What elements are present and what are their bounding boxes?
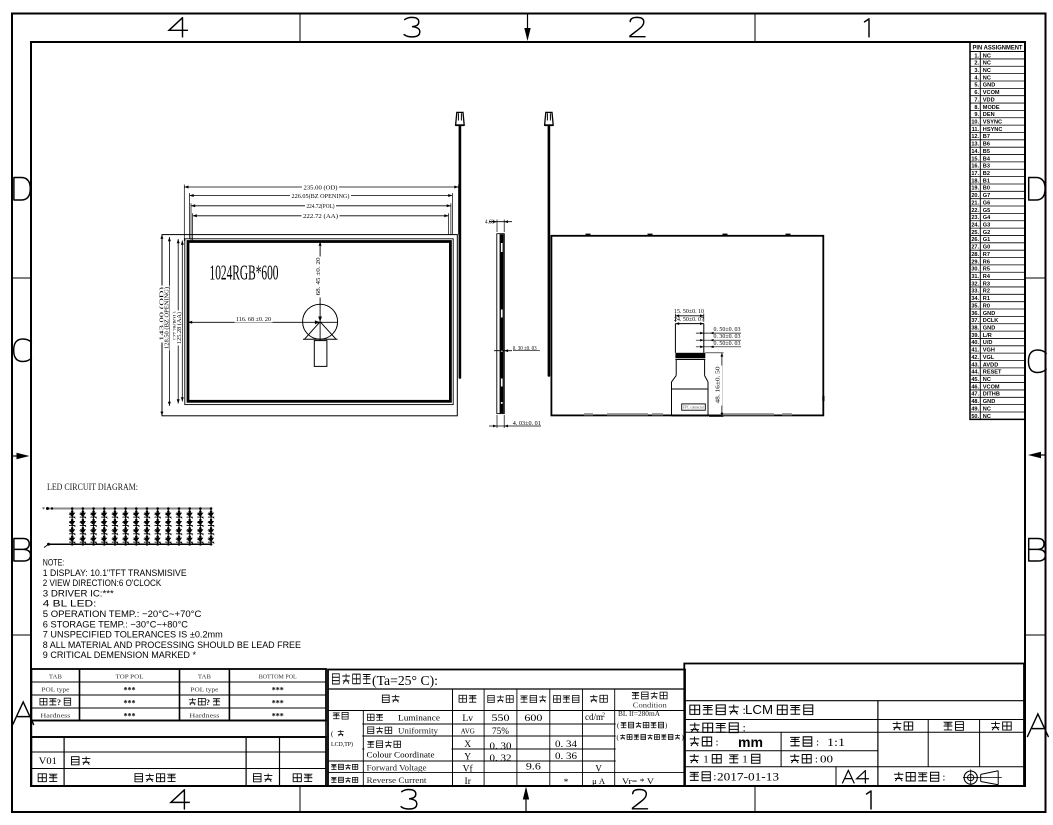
svg-text:MODE: MODE [983,105,1000,111]
svg-text:0. 32: 0. 32 [490,754,512,764]
svg-text:4.: 4. [974,75,979,81]
svg-text:NC: NC [983,406,991,412]
svg-text:G6: G6 [983,200,990,206]
svg-text:(Ta=25° C):: (Ta=25° C): [372,673,438,688]
svg-text:26.: 26. [971,237,979,243]
svg-text:48.: 48. [971,399,979,405]
svg-text:U/D: U/D [983,340,993,346]
svg-text:550: 550 [492,714,510,724]
svg-text:48. 16±0. 50: 48. 16±0. 50 [715,367,721,404]
svg-text:4. 03±0. 01: 4. 03±0. 01 [513,420,541,427]
svg-text:222.72 (AA): 222.72 (AA) [303,213,338,220]
svg-text:G5: G5 [983,208,990,214]
svg-text:32.: 32. [971,281,979,287]
svg-text:GND: GND [983,325,995,331]
svg-text:NC: NC [983,68,991,74]
svg-text:POL type: POL type [41,687,69,694]
svg-text:R4: R4 [983,274,991,280]
svg-text:B4: B4 [983,156,991,162]
svg-text:1:1: 1:1 [827,735,845,749]
svg-text:NC: NC [983,414,991,420]
svg-text:μ A: μ A [592,776,606,786]
svg-text:21.: 21. [971,200,979,206]
svg-text:VGL: VGL [983,355,995,361]
svg-text:B3: B3 [983,164,990,170]
svg-text:Vr= * V: Vr= * V [622,776,655,786]
svg-text:***: *** [124,686,136,695]
svg-text:LED CIRCUIT DIAGRAM:: LED CIRCUIT DIAGRAM: [47,482,138,492]
svg-text:GND: GND [983,83,995,89]
svg-text:41.: 41. [971,348,979,354]
svg-text:42.: 42. [971,355,979,361]
svg-text:4.68: 4.68 [485,219,494,226]
svg-text:1: 1 [742,754,748,766]
svg-text:PIN ASSIGNMENT: PIN ASSIGNMENT [973,44,1023,51]
svg-text:128.50 (BZ OPENING): 128.50 (BZ OPENING) [164,287,171,349]
svg-text:B1: B1 [983,178,990,184]
svg-text:***: *** [272,686,284,695]
svg-text:VGH: VGH [983,348,995,354]
svg-text:V01: V01 [39,756,57,766]
svg-text:Lv: Lv [462,714,473,724]
svg-text:***: *** [272,699,284,708]
svg-text:AVDD: AVDD [983,362,998,368]
svg-text:39.: 39. [971,333,979,339]
svg-text:cd/m: cd/m [585,712,603,722]
svg-text:GND: GND [983,311,995,317]
svg-text:?: ? [206,698,210,707]
svg-text:AVG: AVG [461,728,475,736]
svg-text:DITHB: DITHB [983,392,1000,398]
svg-text:Ir: Ir [465,777,472,787]
svg-text:TAB: TAB [198,674,211,681]
svg-text:V: V [595,764,602,774]
svg-text:13.: 13. [971,142,979,148]
svg-text:20.: 20. [971,193,979,199]
svg-text:33.: 33. [971,289,979,295]
svg-text:38.: 38. [971,325,979,331]
svg-text:L/R: L/R [983,333,992,339]
svg-text:2.: 2. [974,61,979,67]
svg-text:B7: B7 [983,134,990,140]
svg-text:19.: 19. [971,186,979,192]
svg-text:47.: 47. [971,392,979,398]
svg-text:R7: R7 [983,252,990,258]
svg-text:R6: R6 [983,259,990,265]
svg-text:LCD,TP): LCD,TP) [331,741,353,748]
svg-text:VCOM: VCOM [983,384,1000,390]
svg-text:Y: Y [464,753,471,763]
svg-text:G3: G3 [983,223,990,229]
svg-text:45.: 45. [971,377,979,383]
svg-text:?: ? [57,698,61,707]
svg-text:15.: 15. [971,156,979,162]
svg-text:RESET: RESET [983,370,1002,376]
svg-text:00: 00 [820,754,834,766]
svg-text:Forward Voltage: Forward Voltage [367,764,427,773]
svg-text:NC: NC [983,53,991,59]
svg-text:NC: NC [983,75,991,81]
svg-text:): ) [665,723,667,730]
svg-text:25.: 25. [971,230,979,236]
svg-text:36.: 36. [971,311,979,317]
svg-text:TAB: TAB [49,674,62,681]
svg-text:30.: 30. [971,267,979,273]
svg-text:B6: B6 [983,142,990,148]
svg-text:B2: B2 [983,171,990,177]
svg-text:0. 50±0. 03: 0. 50±0. 03 [714,341,741,347]
svg-text:5.: 5. [974,83,979,89]
svg-text:10.: 10. [971,120,979,126]
svg-text:43.: 43. [971,362,979,368]
svg-text:Uniformity: Uniformity [398,727,439,736]
svg-text:17.: 17. [971,171,979,177]
svg-text:HSYNC: HSYNC [983,127,1003,133]
svg-text:***: *** [124,712,136,721]
svg-text::: : [743,721,746,735]
svg-text:R5: R5 [983,267,990,273]
svg-text:VSYNC: VSYNC [983,120,1002,126]
svg-text:35.: 35. [971,303,979,309]
svg-text:G2: G2 [983,230,990,236]
svg-text:50.: 50. [971,414,979,420]
svg-text:BL If=280mA: BL If=280mA [618,710,661,718]
svg-text:mm: mm [738,734,763,750]
svg-text:46.: 46. [971,384,979,390]
svg-text:R1: R1 [983,296,990,302]
svg-text:27.: 27. [971,245,979,251]
svg-text:VCOM: VCOM [983,90,1000,96]
svg-text:*: * [564,778,569,788]
svg-text:FPC connector: FPC connector [683,405,705,410]
svg-text:37.: 37. [971,318,979,324]
svg-text:0. 30±0. 03: 0. 30±0. 03 [714,334,741,340]
svg-text:28.: 28. [971,252,979,258]
svg-text:DCLK: DCLK [983,318,999,324]
svg-text:2: 2 [602,713,605,719]
svg-text:31.: 31. [971,274,979,280]
svg-text:X: X [464,740,471,750]
svg-text:G1: G1 [983,237,990,243]
svg-text:Hardness: Hardness [40,713,71,720]
svg-text:1.: 1. [974,53,979,59]
svg-text:Hardness: Hardness [189,713,220,720]
svg-text:49.: 49. [971,406,979,412]
svg-text:23.: 23. [971,215,979,221]
svg-text:235.00 (OD): 235.00 (OD) [304,184,338,191]
svg-text:***: *** [272,712,284,721]
svg-text:0. 36: 0. 36 [555,752,577,762]
svg-text:Condition: Condition [633,702,668,710]
svg-text:12.: 12. [971,134,979,140]
svg-text:***: *** [124,699,136,708]
svg-text:0. 50±0. 03: 0. 50±0. 03 [714,327,741,333]
svg-text:15. 50±0. 10: 15. 50±0. 10 [674,309,704,315]
svg-text:224.72(POL): 224.72(POL) [307,203,335,210]
svg-text:G7: G7 [983,193,990,199]
svg-text::: : [942,772,945,784]
svg-text:*: * [42,507,45,513]
svg-text:NC: NC [983,377,991,383]
svg-text:B0: B0 [983,186,990,192]
svg-text:14.: 14. [971,149,979,155]
svg-text:8.: 8. [974,105,979,111]
svg-text:0. 34: 0. 34 [555,740,577,750]
svg-text:1024RGB*600: 1024RGB*600 [210,260,279,284]
svg-text:125.28 (AA): 125.28 (AA) [176,312,183,344]
svg-text:9.6: 9.6 [526,763,541,773]
svg-text::: : [816,737,819,749]
svg-text:BOTTOM POL: BOTTOM POL [259,674,297,681]
svg-text:116. 68 ±0. 20: 116. 68 ±0. 20 [236,316,271,323]
svg-text:VDD: VDD [983,97,995,103]
svg-text:1: 1 [703,754,709,766]
svg-text:B5: B5 [983,149,990,155]
svg-text:0. 30: 0. 30 [490,742,512,752]
svg-text:R3: R3 [983,281,990,287]
svg-text:R2: R2 [983,289,990,295]
svg-text:POL type: POL type [190,687,218,694]
svg-text:24. 50±0. 07: 24. 50±0. 07 [674,317,704,323]
svg-text:6.: 6. [974,90,979,96]
svg-text:24.: 24. [971,223,979,229]
svg-text:Luminance: Luminance [398,713,440,723]
svg-text:75%: 75% [492,726,510,736]
svg-text:LCM: LCM [745,702,773,717]
svg-text:16.: 16. [971,164,979,170]
svg-text:3.: 3. [974,68,979,74]
svg-text:DEN: DEN [983,112,995,118]
svg-text:44.: 44. [971,370,979,376]
svg-text:R0: R0 [983,303,990,309]
svg-text:22.: 22. [971,208,979,214]
svg-text:Colour Coordinate: Colour Coordinate [367,750,435,760]
svg-text:2017-01-13: 2017-01-13 [717,772,779,784]
svg-text:9 CRITICAL DEMENSION MARKED: 9 CRITICAL DEMENSION MARKED * [43,650,196,661]
svg-text:40.: 40. [971,340,979,346]
svg-text:68. 45 ±0. 20: 68. 45 ±0. 20 [315,257,322,295]
svg-text:9.: 9. [974,112,979,118]
svg-text:G4: G4 [983,215,991,221]
svg-text:GND: GND [983,399,995,405]
svg-text:18.: 18. [971,178,979,184]
svg-text:34.: 34. [971,296,979,302]
svg-text:226.05(BZ OPENING): 226.05(BZ OPENING) [292,193,350,200]
svg-text:G0: G0 [983,245,990,251]
svg-text:Reverse Current: Reverse Current [367,776,428,785]
svg-text:7.: 7. [974,97,979,103]
svg-text::: : [715,737,718,749]
svg-text:11.: 11. [972,127,980,133]
svg-text:NC: NC [983,61,991,67]
svg-text:600: 600 [524,714,542,724]
svg-text:TOP POL: TOP POL [116,674,144,681]
svg-text:Vf: Vf [463,764,474,775]
svg-text::: : [815,754,818,766]
svg-text:29.: 29. [971,259,979,265]
